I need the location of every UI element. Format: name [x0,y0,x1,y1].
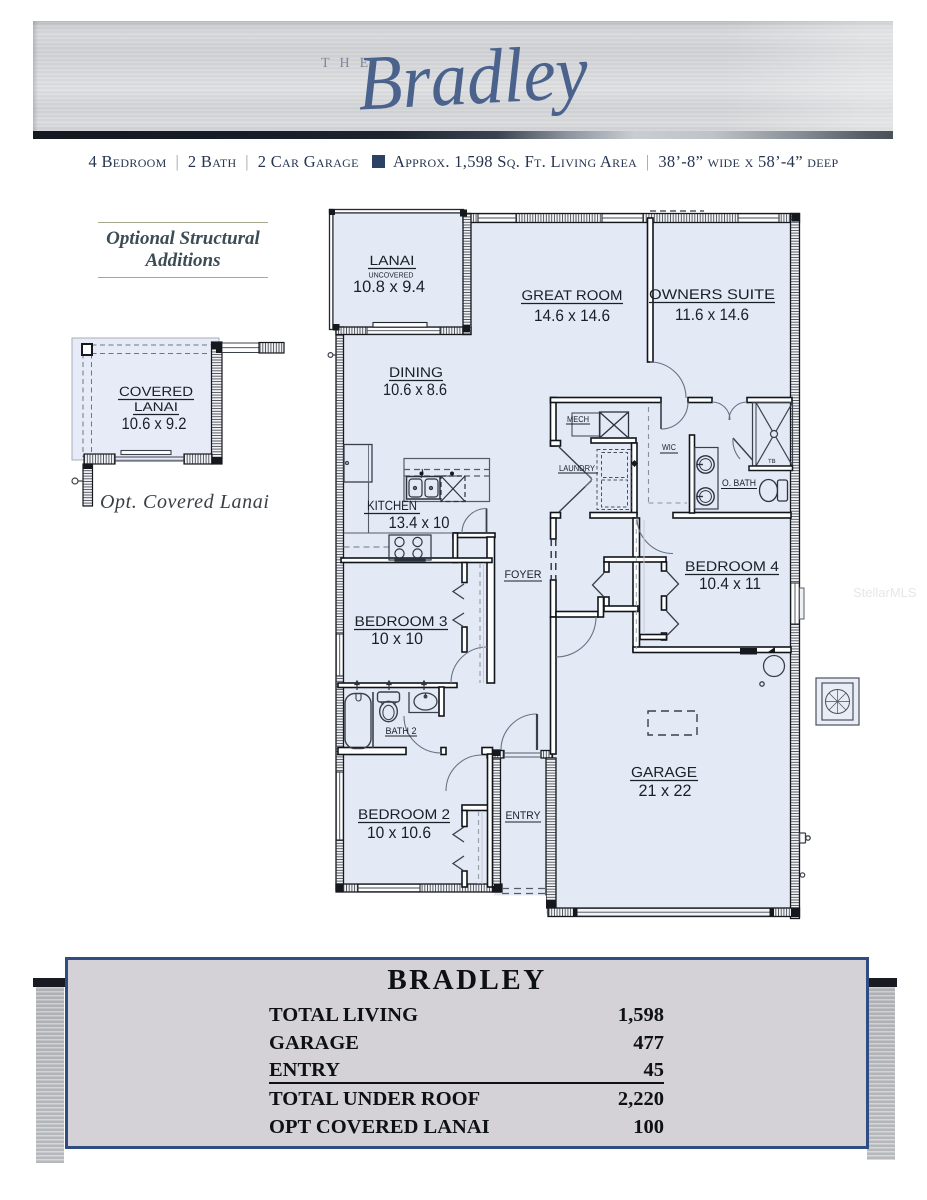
svg-text:BATH 2: BATH 2 [386,726,417,737]
svg-text:10 x 10: 10 x 10 [371,630,423,648]
svg-text:OWNERS SUITE: OWNERS SUITE [649,286,775,302]
svg-text:13.4 x 10: 13.4 x 10 [389,514,450,532]
svg-text:BEDROOM 4: BEDROOM 4 [685,558,779,574]
svg-text:BEDROOM 3: BEDROOM 3 [355,613,448,629]
svg-text:WIC: WIC [662,442,676,452]
svg-text:FOYER: FOYER [505,569,542,581]
svg-text:LAUNDRY: LAUNDRY [559,463,595,473]
svg-text:10.6 x 8.6: 10.6 x 8.6 [383,381,447,399]
svg-text:TB: TB [768,458,776,465]
svg-text:10.8 x 9.4: 10.8 x 9.4 [353,278,425,296]
svg-text:GARAGE: GARAGE [631,765,697,781]
svg-text:10.6 x 9.2: 10.6 x 9.2 [122,415,187,433]
svg-text:21 x 22: 21 x 22 [639,782,692,800]
svg-text:O. BATH: O. BATH [722,478,756,489]
svg-text:10 x 10.6: 10 x 10.6 [367,824,431,842]
svg-text:DINING: DINING [389,364,443,380]
svg-text:KITCHEN: KITCHEN [367,498,417,513]
svg-text:GREAT ROOM: GREAT ROOM [522,287,623,303]
svg-text:MECH: MECH [567,414,589,424]
svg-text:LANAI: LANAI [134,400,178,414]
svg-text:ENTRY: ENTRY [506,810,542,822]
svg-text:COVERED: COVERED [119,384,193,399]
svg-text:LANAI: LANAI [370,253,415,268]
svg-text:10.4 x 11: 10.4 x 11 [699,575,761,593]
svg-text:14.6 x 14.6: 14.6 x 14.6 [534,307,610,325]
svg-text:BEDROOM 2: BEDROOM 2 [358,806,450,822]
svg-text:11.6 x 14.6: 11.6 x 14.6 [675,306,749,324]
